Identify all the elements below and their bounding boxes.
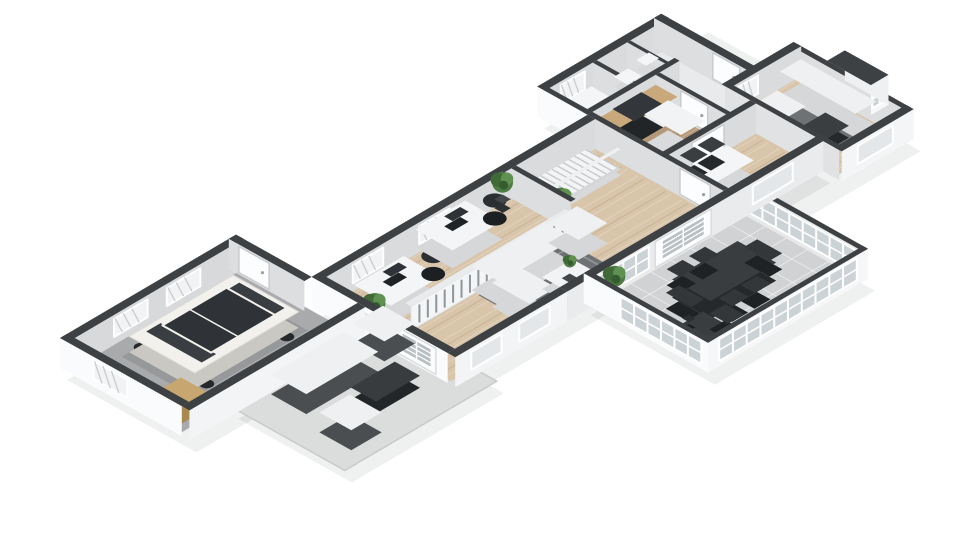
floorplan-3d-render (0, 0, 960, 540)
floorplan-canvas (0, 0, 960, 540)
scene-root (60, 14, 921, 483)
